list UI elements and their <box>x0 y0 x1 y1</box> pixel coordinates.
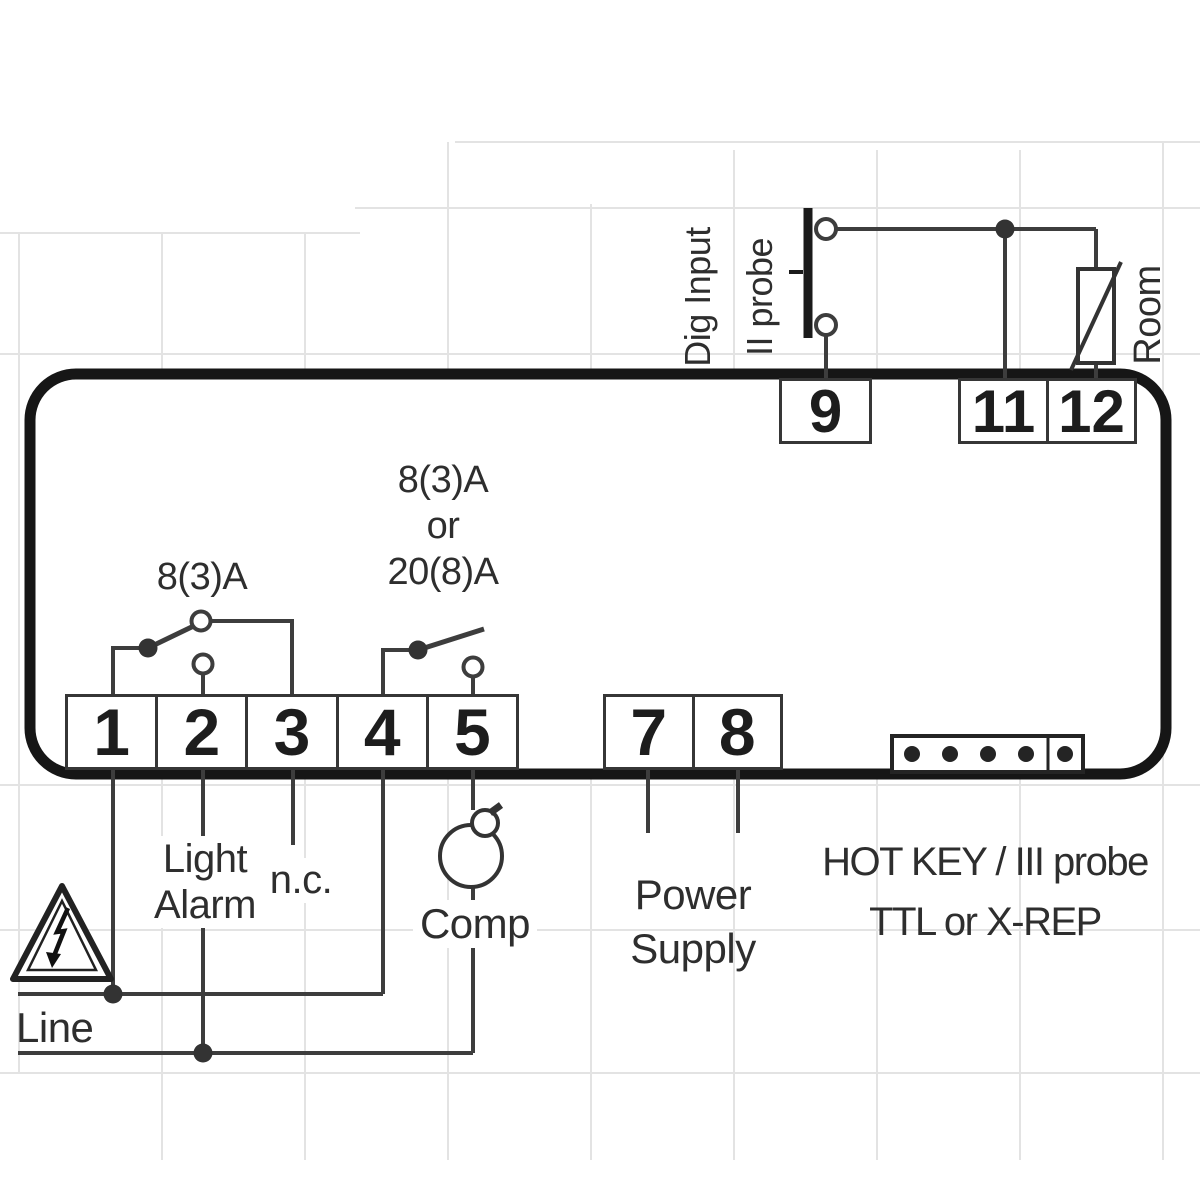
terminal-7: 7 <box>606 697 692 767</box>
relay-left-pivot-dot <box>139 639 158 658</box>
hotkey-line1: HOT KEY / III probe <box>800 832 1170 892</box>
terminal-9-number: 9 <box>809 377 842 446</box>
not-connected-label: n.c. <box>256 858 346 903</box>
room-probe-label: Room <box>1126 255 1170 375</box>
warning-triangle-icon <box>13 886 111 979</box>
terminal-12: 12 <box>1046 381 1134 441</box>
light-alarm-junction-dot <box>194 1044 213 1063</box>
ttl-connector-icon <box>892 736 1083 772</box>
relay2-rating-line3: 20(8)A <box>363 549 523 595</box>
terminal-7-number: 7 <box>630 694 667 770</box>
relay2-rating-label: 8(3)A or 20(8)A <box>363 457 523 595</box>
terminal-8: 8 <box>692 697 781 767</box>
terminal-block-diginput: 9 <box>779 378 872 444</box>
terminal-11: 11 <box>961 381 1046 441</box>
terminal-9: 9 <box>782 381 869 441</box>
relay-right-contact <box>464 658 483 677</box>
compressor-lamp-icon <box>440 805 502 887</box>
terminal-block-power: 7 8 <box>603 694 783 770</box>
controller-wiring-diagram: 1 2 3 4 5 7 8 9 11 12 8(3)A 8(3)A or 20(… <box>0 0 1200 1200</box>
terminal-block-relays: 1 2 3 4 5 <box>65 694 519 770</box>
power-supply-label: Power Supply <box>603 868 783 976</box>
hotkey-label: HOT KEY / III probe TTL or X-REP <box>800 832 1170 952</box>
probe-junction-dot <box>996 220 1015 239</box>
dig-input-line2: II probe <box>729 212 791 382</box>
terminal-11-number: 11 <box>972 377 1035 446</box>
compressor-label: Comp <box>413 900 537 948</box>
terminal-3-number: 3 <box>274 694 311 770</box>
relay-left-nc-contact <box>192 612 211 631</box>
thermistor-icon <box>1071 262 1121 370</box>
terminal-1-number: 1 <box>93 694 130 770</box>
relay-right-pivot-dot <box>409 641 428 660</box>
diagram-canvas <box>0 0 1200 1200</box>
terminal-8-number: 8 <box>719 694 756 770</box>
line-label: Line <box>16 1004 93 1052</box>
relay1-rating-label: 8(3)A <box>132 556 272 599</box>
hotkey-line2: TTL or X-REP <box>800 892 1170 952</box>
terminal-1: 1 <box>68 697 155 767</box>
terminal-3: 3 <box>245 697 335 767</box>
terminal-4-number: 4 <box>364 694 401 770</box>
relay2-rating-line1: 8(3)A <box>363 457 523 503</box>
terminal-5: 5 <box>426 697 516 767</box>
line-junction-dot <box>104 985 123 1004</box>
momentary-switch-icon <box>789 208 836 338</box>
power-supply-line1: Power <box>603 868 783 922</box>
dig-input-line1: Dig Input <box>667 212 729 382</box>
terminal-2-number: 2 <box>183 694 220 770</box>
dig-input-label: Dig Input II probe <box>667 212 791 382</box>
relay-left-no-contact <box>194 655 213 674</box>
terminal-block-probe: 11 12 <box>958 378 1137 444</box>
terminal-5-number: 5 <box>454 694 491 770</box>
power-supply-line2: Supply <box>603 922 783 976</box>
relay2-rating-line2: or <box>363 503 523 549</box>
terminal-4: 4 <box>336 697 426 767</box>
terminal-12-number: 12 <box>1058 377 1125 446</box>
terminal-2: 2 <box>155 697 245 767</box>
